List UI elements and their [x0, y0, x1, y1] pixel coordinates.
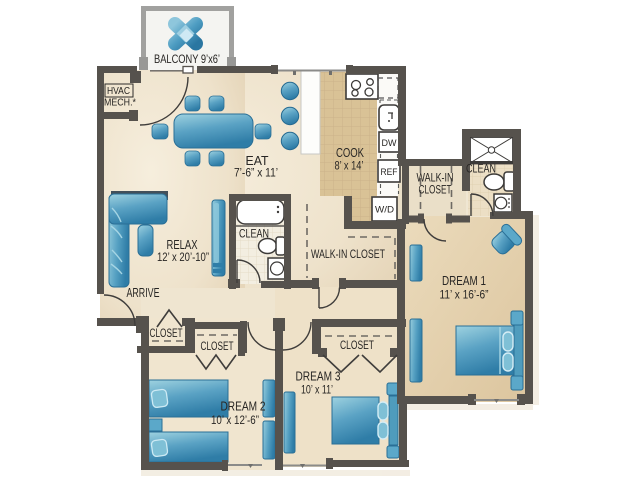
svg-text:EAT: EAT	[246, 153, 269, 168]
svg-text:12’ x 20’-10”: 12’ x 20’-10”	[157, 252, 209, 264]
svg-text:CLEAN: CLEAN	[466, 162, 496, 176]
svg-text:CLOSET: CLOSET	[201, 341, 234, 353]
svg-text:REF: REF	[381, 167, 398, 178]
svg-text:BALCONY 9’x6’: BALCONY 9’x6’	[154, 54, 220, 66]
svg-text:RELAX: RELAX	[167, 237, 198, 252]
svg-text:DREAM 2: DREAM 2	[221, 399, 266, 414]
svg-text:DREAM 3: DREAM 3	[296, 369, 341, 384]
svg-text:7’-6” x 11’: 7’-6” x 11’	[234, 168, 278, 180]
svg-text:COOK: COOK	[336, 146, 365, 160]
svg-text:HVAC: HVAC	[107, 86, 130, 97]
svg-text:CLOSET: CLOSET	[419, 185, 452, 197]
svg-text:WALK-IN CLOSET: WALK-IN CLOSET	[311, 247, 385, 261]
svg-text:MECH.*: MECH.*	[104, 98, 136, 109]
svg-text:10’ x 12’-6”: 10’ x 12’-6”	[211, 415, 259, 427]
svg-text:ARRIVE: ARRIVE	[127, 286, 160, 300]
svg-text:DW: DW	[382, 138, 397, 149]
svg-text:CLOSET: CLOSET	[340, 340, 374, 352]
svg-text:11’ x 16’-6”: 11’ x 16’-6”	[440, 290, 489, 302]
svg-text:8’ x 14’: 8’ x 14’	[335, 161, 364, 173]
svg-text:DREAM 1: DREAM 1	[442, 273, 486, 288]
svg-text:W/D: W/D	[375, 205, 394, 216]
svg-text:10’ x 11’: 10’ x 11’	[301, 385, 333, 397]
svg-text:CLOSET: CLOSET	[150, 328, 183, 340]
svg-text:CLEAN: CLEAN	[239, 227, 269, 241]
svg-text:WALK-IN: WALK-IN	[417, 173, 454, 185]
